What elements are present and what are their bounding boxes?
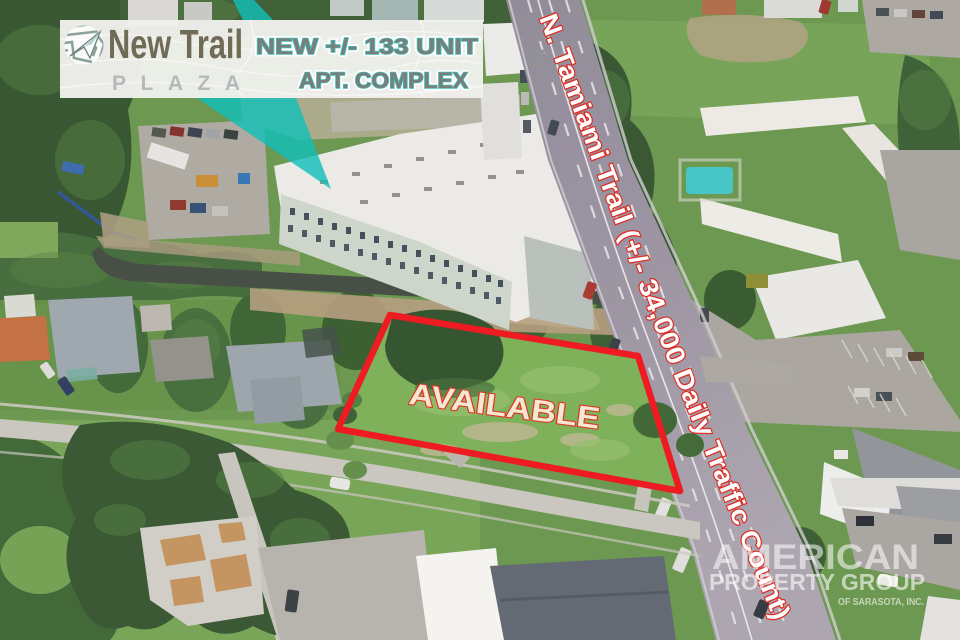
- svg-text:APT. COMPLEX: APT. COMPLEX: [299, 68, 468, 93]
- svg-text:PROPERTY GROUP: PROPERTY GROUP: [709, 569, 925, 595]
- svg-text:OF SARASOTA, INC.: OF SARASOTA, INC.: [838, 596, 924, 608]
- svg-text:PLAZA: PLAZA: [112, 72, 255, 95]
- svg-text:New Trail: New Trail: [108, 21, 243, 67]
- svg-text:NEW +/- 133 UNIT: NEW +/- 133 UNIT: [256, 34, 479, 59]
